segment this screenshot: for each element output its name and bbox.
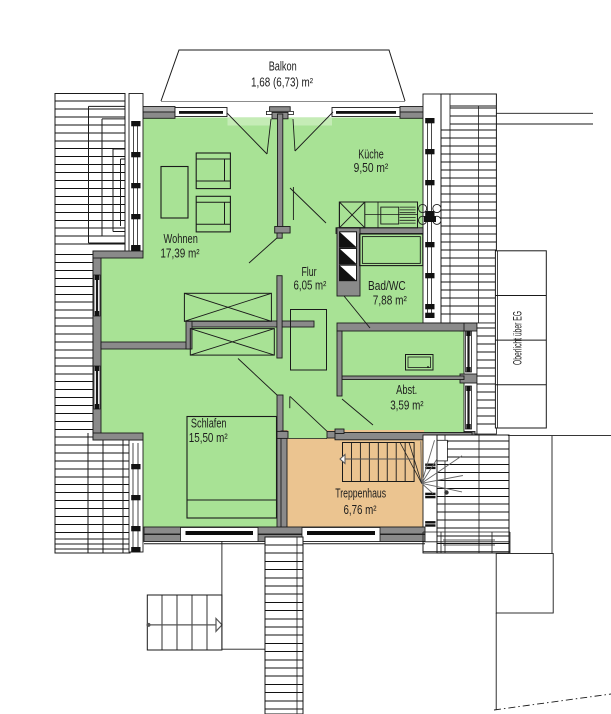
svg-text:17,39 m²: 17,39 m²	[160, 246, 200, 261]
svg-text:Balkon: Balkon	[269, 58, 297, 73]
svg-text:6,05 m²: 6,05 m²	[294, 277, 327, 292]
svg-text:Treppenhaus: Treppenhaus	[335, 486, 386, 501]
svg-text:Küche: Küche	[358, 146, 384, 161]
svg-text:Oberlicht über EG: Oberlicht über EG	[511, 311, 525, 365]
svg-text:Wohnen: Wohnen	[164, 231, 198, 246]
svg-text:7,88 m²: 7,88 m²	[373, 292, 408, 307]
svg-text:15,50 m²: 15,50 m²	[189, 430, 228, 445]
svg-text:3,59 m²: 3,59 m²	[390, 397, 424, 412]
svg-text:Schlafen: Schlafen	[191, 416, 227, 431]
svg-text:1,68 (6,73) m²: 1,68 (6,73) m²	[251, 75, 313, 90]
svg-text:6,76 m²: 6,76 m²	[343, 502, 377, 517]
svg-text:Bad/WC: Bad/WC	[368, 278, 406, 293]
svg-text:9,50 m²: 9,50 m²	[354, 160, 389, 175]
svg-text:Abst.: Abst.	[396, 382, 417, 397]
